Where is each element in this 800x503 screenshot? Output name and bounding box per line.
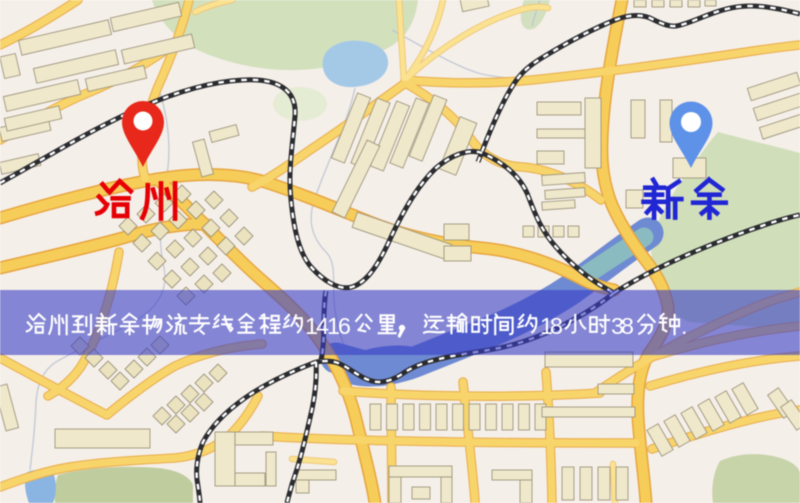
svg-text:18: 18 [540,313,563,339]
svg-text:1416: 1416 [305,313,351,339]
svg-text:38: 38 [611,313,634,339]
svg-text:.: . [681,313,688,339]
